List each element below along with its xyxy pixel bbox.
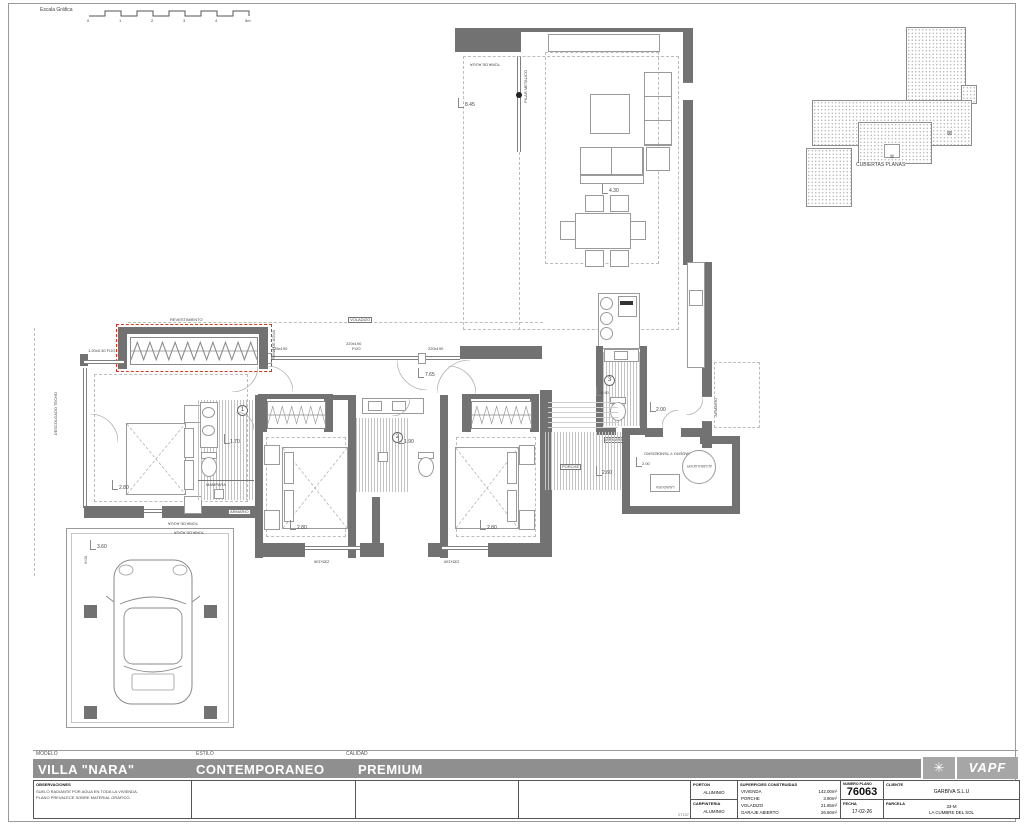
wall xyxy=(460,346,542,359)
observations-line: SUELO RADIANTE POR AGUA EN TODA LA VIVIE… xyxy=(36,790,138,794)
glass-wall xyxy=(83,368,87,508)
wall xyxy=(622,506,740,514)
built-areas-caption: SUPERFICIES CONSTRUIDAS xyxy=(740,782,797,787)
wall xyxy=(462,394,471,432)
dim-label: 1.90 xyxy=(404,440,414,446)
scale-bar xyxy=(88,6,250,25)
pillow xyxy=(284,490,294,522)
window-size-label: 220x190 xyxy=(428,347,443,351)
shower-screen xyxy=(198,480,254,481)
pillow xyxy=(184,460,194,490)
pillow xyxy=(507,452,517,484)
door-swing xyxy=(267,366,293,397)
quality-caption: CALIDAD xyxy=(346,752,368,758)
hanger-zigzag-icon xyxy=(131,338,257,364)
client-value: GARBIVA S.L.U xyxy=(884,789,1019,795)
wall xyxy=(455,28,521,52)
wardrobe xyxy=(130,337,258,365)
nightstand xyxy=(519,510,535,530)
wall xyxy=(84,506,144,518)
window xyxy=(84,360,124,364)
water-intake-label: TOMA DE AGUA xyxy=(174,530,204,534)
area-row: VOLADIZO 21.65m² xyxy=(741,803,837,808)
room-number-badge: 3 xyxy=(604,375,615,386)
window-size-label: 235x190 xyxy=(444,559,459,563)
dim-label: 8.45 xyxy=(465,103,475,109)
dim-label: 6.00 xyxy=(84,556,88,564)
pillar-marker-icon: ⊠ xyxy=(947,131,952,138)
area-name: VIVIENDA xyxy=(741,789,762,794)
scale-tick: 3 xyxy=(183,19,185,23)
dining-chair xyxy=(610,195,629,212)
wall xyxy=(488,543,540,557)
dim-label: 4.30 xyxy=(609,189,619,195)
overhang-dashed-outline xyxy=(714,362,760,428)
empty-box xyxy=(191,780,357,819)
sofa xyxy=(644,72,672,146)
dim-label: 2.80 xyxy=(297,526,307,532)
door-swing xyxy=(232,366,258,397)
plan-number-cell: NUMERO PLANO 76063 xyxy=(840,780,884,800)
cooktop-controls xyxy=(620,301,633,305)
observations-caption: OBSERVACIONES xyxy=(36,782,71,787)
washbasin xyxy=(614,351,628,360)
built-areas-cell: SUPERFICIES CONSTRUIDAS VIVIENDA 142.00m… xyxy=(737,780,841,819)
observations-box: OBSERVACIONES SUELO RADIANTE POR AGUA EN… xyxy=(33,780,193,819)
style-name: CONTEMPORANEO xyxy=(196,762,325,777)
vapf-logo-mark: ✳ xyxy=(923,757,955,779)
dim-label: 2.80 xyxy=(487,526,497,532)
scale-tick: 4 xyxy=(215,19,217,23)
pillow xyxy=(284,452,294,484)
parcel-cell: PARCELA 33-M LA CUMBRE DEL SOL xyxy=(883,799,1020,819)
washing-machine: LAVADORA xyxy=(650,474,680,492)
area-row: VIVIENDA 142.00m² xyxy=(741,789,837,794)
roof-plan-title: CUBIERTAS PLANAS xyxy=(856,163,905,169)
dim-label: 1.70 xyxy=(230,440,240,446)
wall xyxy=(519,28,685,32)
area-name: GARAJE ABIERTO xyxy=(741,810,779,815)
entry-steps xyxy=(548,398,618,428)
dining-chair xyxy=(610,250,629,267)
area-row: PORCHE 3.90m² xyxy=(741,796,837,801)
window xyxy=(442,546,488,550)
carpentry-caption: CARPINTERIA xyxy=(693,801,720,806)
window xyxy=(144,509,162,513)
wall xyxy=(258,394,267,432)
window xyxy=(305,546,360,550)
dim-label: 2.80 xyxy=(119,486,129,492)
window-size-label: 1.20x0.30 FIJO xyxy=(88,349,115,353)
closet-label: ARMARIO xyxy=(228,509,251,515)
scale-tick: 5m xyxy=(245,19,251,23)
porch-decking xyxy=(545,432,623,490)
wardrobe xyxy=(267,401,326,429)
plot-dashed-line xyxy=(34,328,35,576)
wall xyxy=(683,100,693,265)
area-row: GARAJE ABIERTO 26.60m² xyxy=(741,810,837,815)
dim-mark xyxy=(602,184,608,194)
door-swing xyxy=(236,412,254,435)
pillar-marker-icon: ⊠ xyxy=(890,154,894,160)
area-value: 26.60m² xyxy=(821,810,837,815)
dim-label: 0.90 xyxy=(601,391,609,395)
dining-table xyxy=(575,213,631,249)
nightstand xyxy=(264,445,280,465)
pillow xyxy=(184,428,194,458)
sofa xyxy=(580,147,644,175)
sink-bowl xyxy=(600,297,613,310)
kitchen-appliance xyxy=(689,290,703,306)
garage-column xyxy=(84,706,97,719)
porch-label: PORCHE xyxy=(560,464,581,470)
wall xyxy=(700,436,740,444)
sink-bowl xyxy=(600,327,613,340)
nightstand xyxy=(264,510,280,530)
area-value: 142.00m² xyxy=(818,789,837,794)
garage-column xyxy=(204,605,217,618)
date-value: 17-02-26 xyxy=(841,809,883,815)
cladding-label: REVESTIMIENTO xyxy=(170,318,203,322)
shower-screen-label: MAMPARA xyxy=(206,483,226,487)
dim-label: 2.60 xyxy=(602,471,612,477)
door-swing xyxy=(397,360,427,395)
garage-column xyxy=(204,706,217,719)
window-fixed-label: FIJO xyxy=(352,347,361,351)
client-caption: CLIENTE xyxy=(886,782,903,787)
date-cell: FECHA 17-02-26 xyxy=(840,799,884,819)
washbasin xyxy=(202,425,215,436)
wall xyxy=(622,428,630,514)
wall xyxy=(259,327,268,369)
doc-number: 27137 xyxy=(678,813,689,817)
roof-plan-shape xyxy=(906,27,966,105)
scale-bar-label: Escala Gráfica xyxy=(40,8,73,14)
toilet xyxy=(418,457,434,477)
carpentry-cell: CARPINTERIA ALUMINIO xyxy=(690,799,738,819)
area-value: 3.90m² xyxy=(823,796,837,801)
dim-mark xyxy=(90,540,96,550)
wall xyxy=(332,395,356,400)
door-swing xyxy=(686,398,703,420)
dining-chair xyxy=(585,250,604,267)
sofa-back xyxy=(580,175,644,184)
roof-chimney: ⊠ xyxy=(884,144,900,158)
wall xyxy=(683,28,693,82)
entry-door-opening xyxy=(702,396,712,422)
window-size-label: 235x190 xyxy=(314,559,329,563)
dining-chair xyxy=(630,221,646,240)
dim-mark xyxy=(112,480,118,490)
gate-cell: PORTON ALUMINIO xyxy=(690,780,738,800)
client-cell: CLIENTE GARBIVA S.L.U xyxy=(883,780,1020,800)
water-heater: ACUMULADOR xyxy=(682,450,716,484)
toilet xyxy=(201,457,217,477)
wall xyxy=(732,436,740,514)
door-swing xyxy=(392,398,410,421)
sink-bowl xyxy=(600,312,613,325)
pillow xyxy=(507,490,517,522)
model-name: VILLA "NARA" xyxy=(38,762,135,777)
side-table xyxy=(646,147,670,171)
water-heater-label: ACUMULADOR xyxy=(687,464,712,468)
water-intake-label: TOMA DE AGUA xyxy=(272,330,276,360)
carpentry-value: ALUMINIO xyxy=(691,809,737,814)
wall xyxy=(645,428,663,437)
dining-chair xyxy=(585,195,604,212)
vapf-logo: VAPF xyxy=(957,757,1018,779)
roof-plan-shape xyxy=(806,148,852,207)
plan-number: 76063 xyxy=(841,786,883,798)
wall xyxy=(360,543,384,557)
glass-sliding-wall xyxy=(266,356,460,360)
drawing-sheet: Escala Gráfica 0 1 2 3 4 5m ⊠ ⊠ CUBIERTA… xyxy=(0,0,1024,827)
scale-tick: 2 xyxy=(151,19,153,23)
gate-value: ALUMINIO xyxy=(691,790,737,795)
style-caption: ESTILO xyxy=(196,752,214,758)
shower-drain xyxy=(378,452,388,462)
wardrobe xyxy=(471,401,532,429)
door-swing xyxy=(662,410,679,432)
gate-caption: PORTON xyxy=(693,782,710,787)
title-band: VILLA "NARA" CONTEMPORANEO PREMIUM xyxy=(33,759,921,778)
shower-drain xyxy=(214,489,224,499)
overhang-label: VOLADIZO xyxy=(348,317,372,323)
scale-tick: 1 xyxy=(119,19,121,23)
wall xyxy=(640,346,647,434)
dim-mark xyxy=(480,520,486,530)
area-value: 21.65m² xyxy=(821,803,837,808)
double-bed xyxy=(126,423,186,495)
vapf-logo-text: VAPF xyxy=(969,760,1007,775)
door-swing xyxy=(437,360,470,398)
wall xyxy=(348,395,356,558)
titleblock-topline xyxy=(33,750,1018,751)
dim-mark xyxy=(290,520,296,530)
observations-line: PLANO PREVALECE SOBRE MATERIAL GRÁFICO. xyxy=(36,796,131,800)
washbasin xyxy=(368,401,382,411)
car xyxy=(106,556,200,708)
nightstand xyxy=(519,445,535,465)
empty-box xyxy=(355,780,520,819)
dim-label: 2.00 xyxy=(642,462,650,466)
wall xyxy=(440,395,448,558)
vapf-sun-icon: ✳ xyxy=(934,760,945,775)
door-swing xyxy=(90,414,118,447)
dim-mark xyxy=(458,98,464,108)
quality-name: PREMIUM xyxy=(358,762,423,777)
wall xyxy=(260,543,305,557)
scale-tick: 0 xyxy=(87,19,89,23)
coffee-table xyxy=(590,94,630,134)
washbasin xyxy=(202,407,215,418)
cooktop xyxy=(618,296,637,317)
parcel-number: 33-M xyxy=(884,804,1019,809)
date-caption: FECHA xyxy=(843,801,857,806)
parcel-name: LA CUMBRE DEL SOL xyxy=(884,810,1019,815)
wall xyxy=(118,327,268,334)
scale-bar-icon xyxy=(88,6,250,20)
water-intake-label: TOMA DE AGUA xyxy=(168,521,198,525)
dropped-ceiling-label: DESCOLGADO TECHO xyxy=(54,392,58,435)
dim-label: 3.60 xyxy=(97,545,107,551)
empty-box: 27137 xyxy=(518,780,692,819)
area-name: VOLADIZO xyxy=(741,803,763,808)
washing-machine-label: LAVADORA xyxy=(656,485,675,489)
wall xyxy=(428,543,442,557)
area-name: PORCHE xyxy=(741,796,760,801)
kitchen-counter xyxy=(687,262,705,368)
dining-chair xyxy=(560,221,576,240)
garage-column xyxy=(84,605,97,618)
tv-cabinet xyxy=(548,34,660,52)
window xyxy=(683,82,693,102)
model-caption: MODELO xyxy=(36,752,58,758)
